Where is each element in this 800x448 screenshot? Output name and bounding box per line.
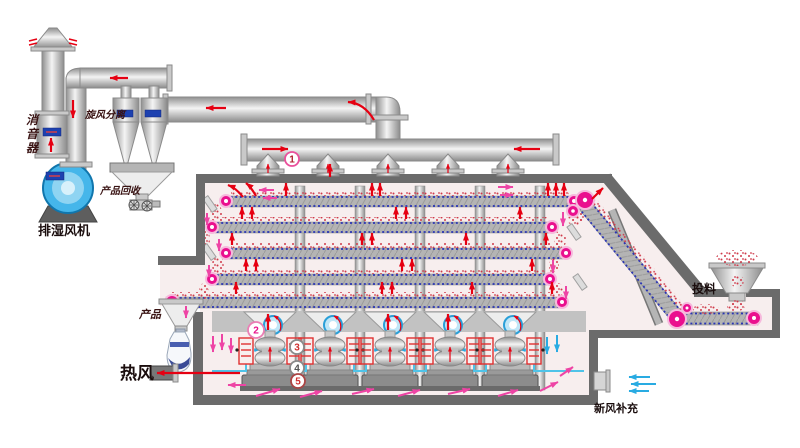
manifold-riser: [376, 119, 400, 141]
marker-5-num: 5: [295, 377, 301, 388]
muffler-label-char: 消: [26, 113, 40, 127]
feedbox-top-wall: [746, 289, 780, 297]
material-pile: [716, 250, 758, 266]
product-recovery-label: 产品回收: [99, 185, 142, 197]
left-wall-lower: [193, 312, 203, 400]
dehumid-fan-label: 排湿风机: [38, 223, 90, 238]
belt-dryer-flow-diagram: 1 2 3 4 5 消 音 器 排湿风机 旋风分离 产品回收 产品 热风 投料 …: [0, 0, 800, 448]
support-column: [415, 186, 425, 390]
product-label: 产品: [138, 308, 162, 321]
right-wall-lower: [589, 330, 598, 405]
hot-air-label: 热风: [120, 363, 154, 383]
fresh-air-label: 新风补充: [594, 401, 638, 415]
material-layer: [171, 292, 557, 297]
bottom-wall: [193, 395, 598, 405]
feeding-label: 投料: [692, 281, 716, 296]
marker-2-num: 2: [253, 326, 259, 337]
muffler-label-char: 器: [26, 141, 40, 155]
cyclone-2-cone: [141, 122, 167, 166]
support-column: [295, 186, 305, 390]
marker-3-num: 3: [294, 343, 300, 354]
material-layer: [217, 269, 545, 274]
muffler-label-char: 音: [26, 127, 40, 141]
support-column: [475, 186, 485, 390]
feedbox-bottom-wall: [589, 330, 780, 338]
cyclone-label: 旋风分离: [84, 109, 127, 121]
stack-cap: [33, 28, 73, 48]
fresh-air-port: [594, 370, 610, 392]
marker-1-num: 1: [289, 155, 295, 166]
left-wall-upper: [196, 174, 205, 262]
material-layer: [217, 217, 547, 222]
stack-pipe: [42, 51, 64, 113]
material-layer: [231, 191, 569, 196]
step-wall: [158, 256, 205, 265]
support-column: [535, 186, 545, 390]
cyclone-1-cone: [113, 122, 139, 166]
support-column: [355, 186, 365, 390]
diagram-canvas: 1 2 3 4 5 消 音 器 排湿风机 旋风分离 产品回收 产品 热风 投料 …: [0, 0, 800, 448]
brand-badge: [145, 110, 161, 117]
falling-material: [199, 283, 209, 299]
collector-bar: [110, 163, 174, 172]
marker-4-num: 4: [294, 364, 300, 375]
material-layer: [231, 243, 561, 248]
dryer-exhaust-pipe: [166, 97, 380, 122]
